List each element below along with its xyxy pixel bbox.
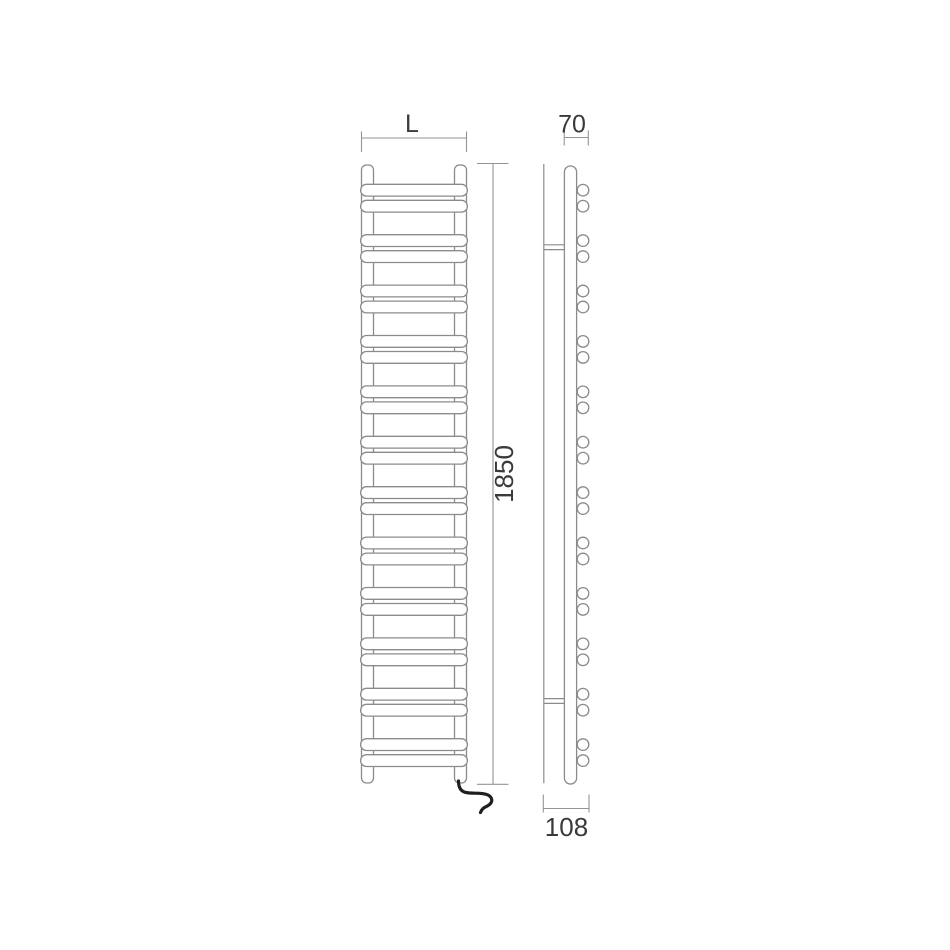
towel-bar bbox=[361, 352, 468, 364]
depth-dimension: 70 bbox=[558, 111, 588, 146]
towel-bar bbox=[361, 200, 468, 212]
tube-end-circle bbox=[577, 184, 589, 196]
towel-bar bbox=[361, 638, 468, 650]
towel-bar bbox=[361, 184, 468, 196]
drawing-svg: L 1850 bbox=[0, 0, 950, 950]
side-tube-ends bbox=[577, 184, 589, 766]
towel-bar bbox=[361, 537, 468, 549]
height-dimension-label: 1850 bbox=[489, 445, 519, 503]
tube-end-circle bbox=[577, 588, 589, 600]
towel-bar bbox=[361, 402, 468, 414]
towel-bar bbox=[361, 285, 468, 297]
tube-end-circle bbox=[577, 251, 589, 263]
towel-bar bbox=[361, 604, 468, 616]
tube-end-circle bbox=[577, 402, 589, 414]
tube-end-circle bbox=[577, 436, 589, 448]
tube-end-circle bbox=[577, 688, 589, 700]
wall-bracket-bottom bbox=[544, 699, 565, 704]
tube-end-circle bbox=[577, 704, 589, 716]
towel-bar bbox=[361, 251, 468, 263]
towel-bar bbox=[361, 436, 468, 448]
towel-bar bbox=[361, 301, 468, 313]
front-view: L 1850 bbox=[361, 110, 519, 813]
front-towel-bars bbox=[361, 184, 468, 766]
towel-bar bbox=[361, 235, 468, 247]
tube-end-circle bbox=[577, 352, 589, 364]
towel-bar bbox=[361, 503, 468, 515]
tube-end-circle bbox=[577, 452, 589, 464]
tube-end-circle bbox=[577, 301, 589, 313]
towel-bar bbox=[361, 755, 468, 767]
tube-end-circle bbox=[577, 604, 589, 616]
radiator-technical-drawing: L 1850 bbox=[0, 0, 950, 950]
total-depth-dimension-label: 108 bbox=[545, 812, 588, 842]
towel-bar bbox=[361, 386, 468, 398]
towel-bar bbox=[361, 452, 468, 464]
towel-bar bbox=[361, 588, 468, 600]
tube-end-circle bbox=[577, 386, 589, 398]
tube-end-circle bbox=[577, 285, 589, 297]
tube-end-circle bbox=[577, 654, 589, 666]
towel-bar bbox=[361, 654, 468, 666]
towel-bar bbox=[361, 553, 468, 565]
tube-end-circle bbox=[577, 200, 589, 212]
side-view: 70 108 bbox=[543, 111, 589, 843]
height-dimension: 1850 bbox=[477, 164, 519, 785]
towel-bar bbox=[361, 487, 468, 499]
width-dimension-label: L bbox=[405, 110, 419, 138]
tube-end-circle bbox=[577, 487, 589, 499]
towel-bar bbox=[361, 336, 468, 348]
towel-bar bbox=[361, 688, 468, 700]
wall-bracket-top bbox=[544, 245, 565, 250]
tube-end-circle bbox=[577, 503, 589, 515]
width-dimension: L bbox=[362, 110, 467, 152]
depth-dimension-label: 70 bbox=[558, 111, 586, 139]
tube-end-circle bbox=[577, 638, 589, 650]
power-cable bbox=[459, 781, 492, 813]
tube-end-circle bbox=[577, 739, 589, 751]
tube-end-circle bbox=[577, 235, 589, 247]
tube-end-circle bbox=[577, 537, 589, 549]
tube-end-circle bbox=[577, 553, 589, 565]
towel-bar bbox=[361, 739, 468, 751]
tube-end-circle bbox=[577, 755, 589, 767]
towel-bar bbox=[361, 704, 468, 716]
tube-end-circle bbox=[577, 336, 589, 348]
total-depth-dimension: 108 bbox=[543, 795, 589, 843]
side-rail-profile bbox=[564, 166, 576, 784]
